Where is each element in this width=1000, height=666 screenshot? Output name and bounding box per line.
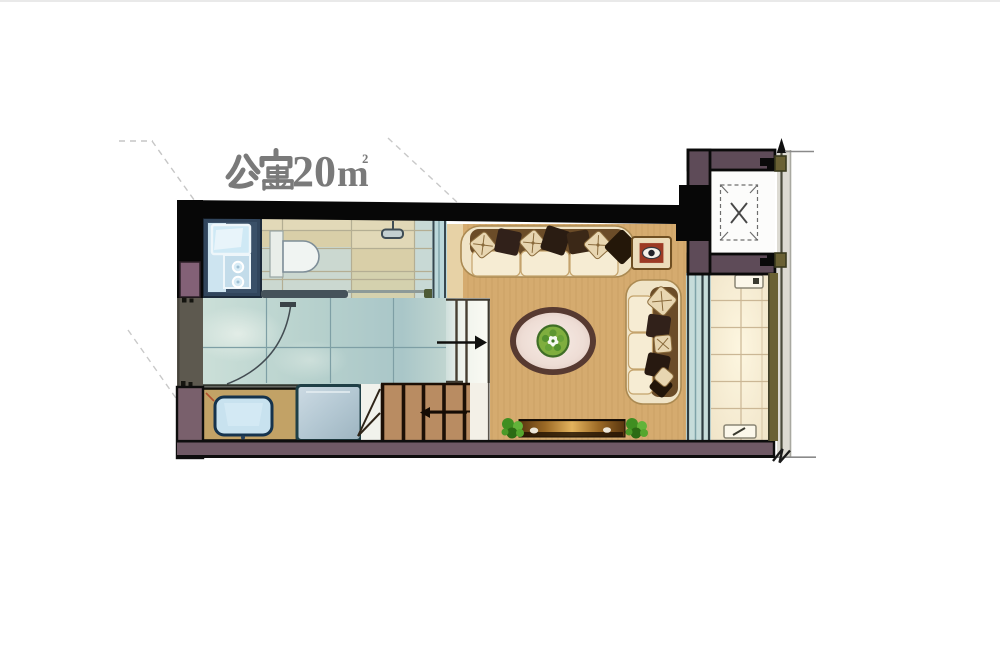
svg-text:20: 20	[292, 147, 336, 196]
svg-text:²: ²	[362, 150, 368, 174]
